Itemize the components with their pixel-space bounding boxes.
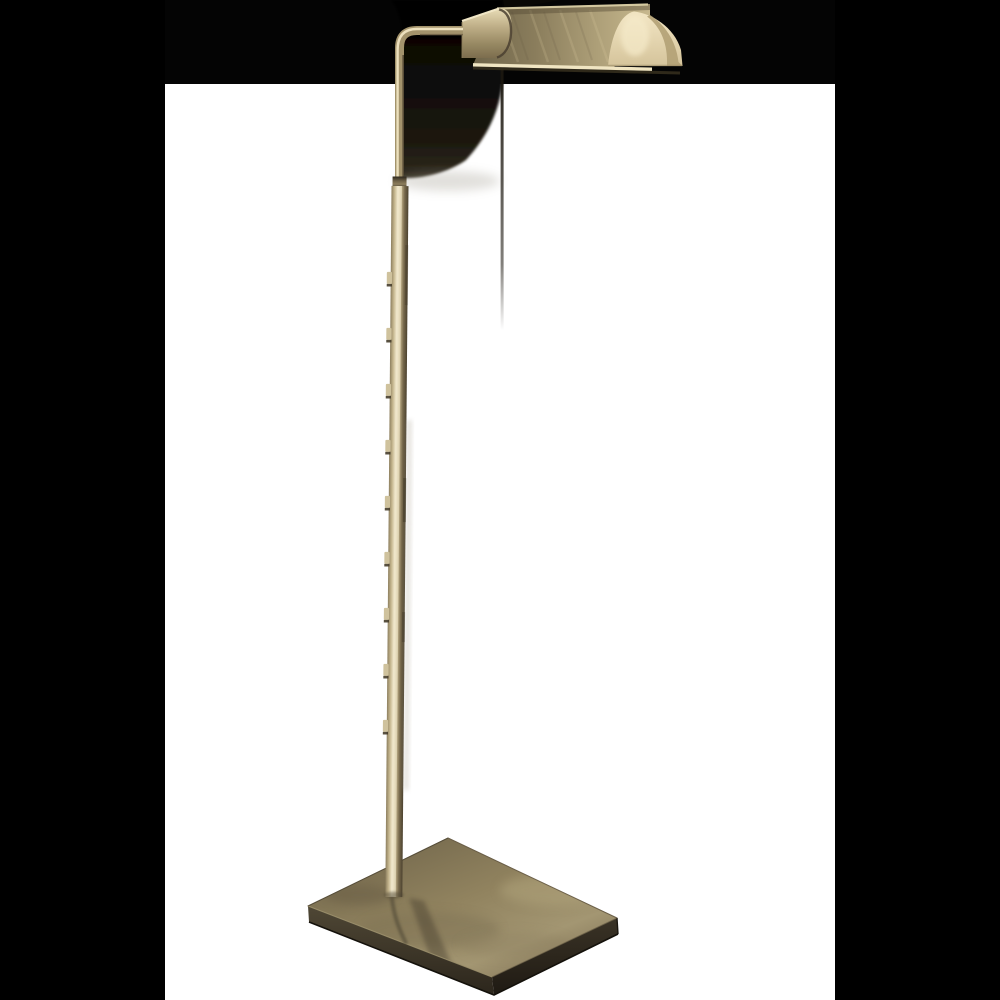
product-image <box>0 0 1000 1000</box>
pole-dark-patch <box>403 478 406 522</box>
pole-collar <box>392 176 406 187</box>
floor-lamp-photo <box>0 0 1000 1000</box>
photo-background <box>165 0 835 1000</box>
letterbox-right-bar <box>835 0 1000 1000</box>
pole-dark-patch <box>405 245 409 305</box>
pole-dark-patch <box>402 612 405 642</box>
power-cord <box>501 66 504 330</box>
base-right-corner-edge <box>617 918 618 934</box>
letterbox-left-bar <box>0 0 165 1000</box>
shade-end-dome-sheen <box>621 16 649 56</box>
